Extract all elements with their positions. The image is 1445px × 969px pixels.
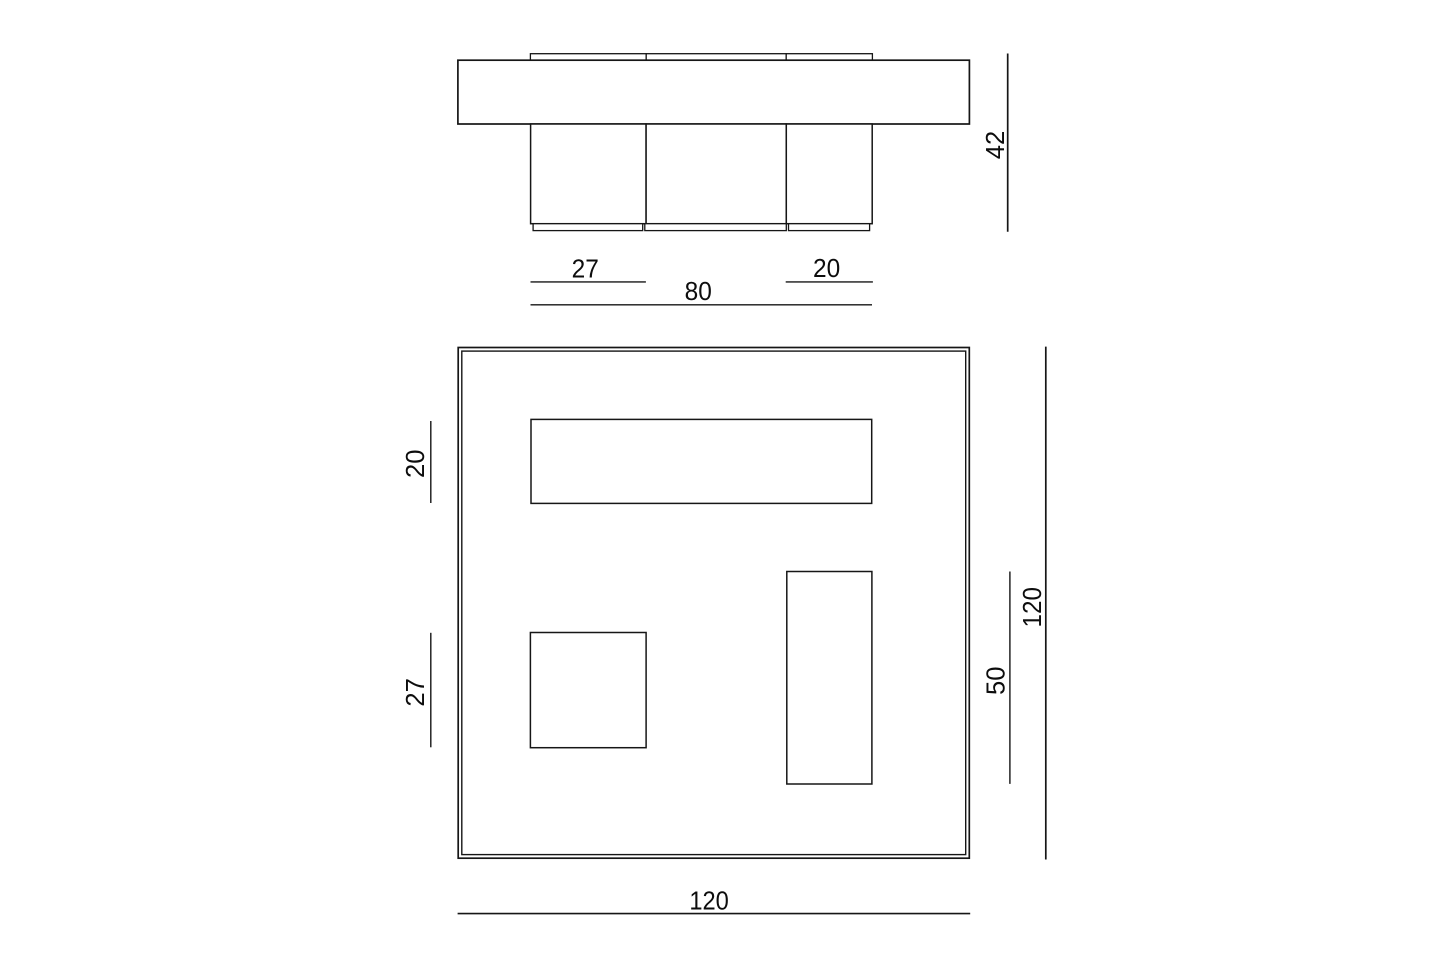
svg-text:80: 80: [685, 276, 712, 306]
svg-text:42: 42: [980, 131, 1010, 160]
svg-text:27: 27: [400, 678, 430, 707]
svg-text:50: 50: [981, 667, 1011, 696]
svg-text:20: 20: [813, 253, 840, 283]
svg-text:120: 120: [689, 886, 729, 916]
svg-text:27: 27: [572, 254, 599, 284]
svg-text:20: 20: [400, 450, 430, 479]
svg-text:120: 120: [1017, 587, 1047, 628]
